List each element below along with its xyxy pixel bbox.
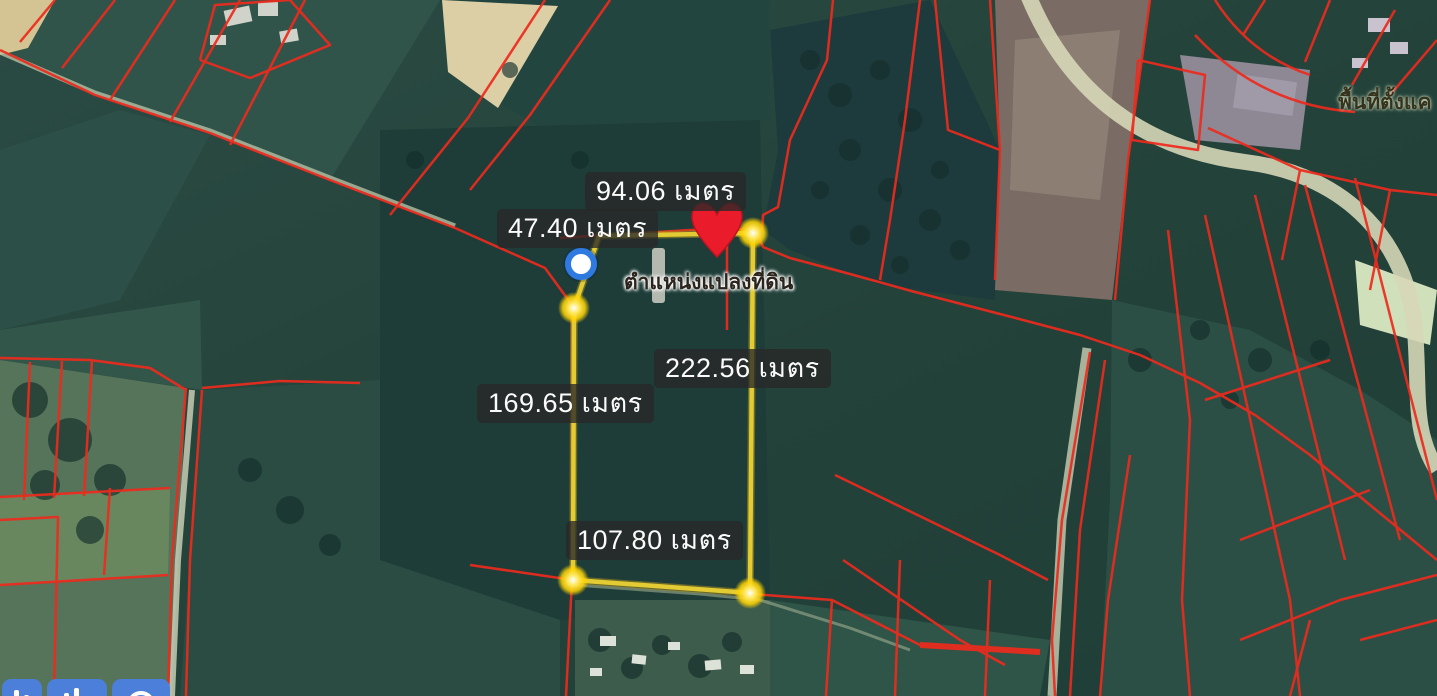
- parcel-position-label: ตำแหน่งแปลงที่ดิน: [624, 266, 793, 299]
- action-button-2[interactable]: [47, 679, 107, 696]
- active-vertex-marker[interactable]: [564, 247, 598, 281]
- measurement-chip-upper-left: 47.40 เมตร: [497, 209, 658, 248]
- parcel-vertex[interactable]: [558, 292, 590, 324]
- bar-chart-icon: [47, 679, 107, 696]
- satellite-map[interactable]: [0, 0, 1437, 696]
- bar-chart-icon: [2, 679, 42, 696]
- map-viewport[interactable]: 94.06 เมตร 47.40 เมตร 222.56 เมตร 169.65…: [0, 0, 1437, 696]
- measurement-chip-right: 222.56 เมตร: [654, 349, 831, 388]
- action-button-1[interactable]: [2, 679, 42, 696]
- place-name-label: พื้นที่ตั้งแค: [1338, 86, 1432, 119]
- measurement-chip-left: 169.65 เมตร: [477, 384, 654, 423]
- measurement-chip-top: 94.06 เมตร: [585, 172, 746, 211]
- parcel-vertex[interactable]: [557, 564, 589, 596]
- measurement-chip-bottom: 107.80 เมตร: [566, 521, 743, 560]
- action-button-3[interactable]: [112, 679, 170, 696]
- parcel-vertex[interactable]: [734, 577, 766, 609]
- circle-icon: [112, 679, 170, 696]
